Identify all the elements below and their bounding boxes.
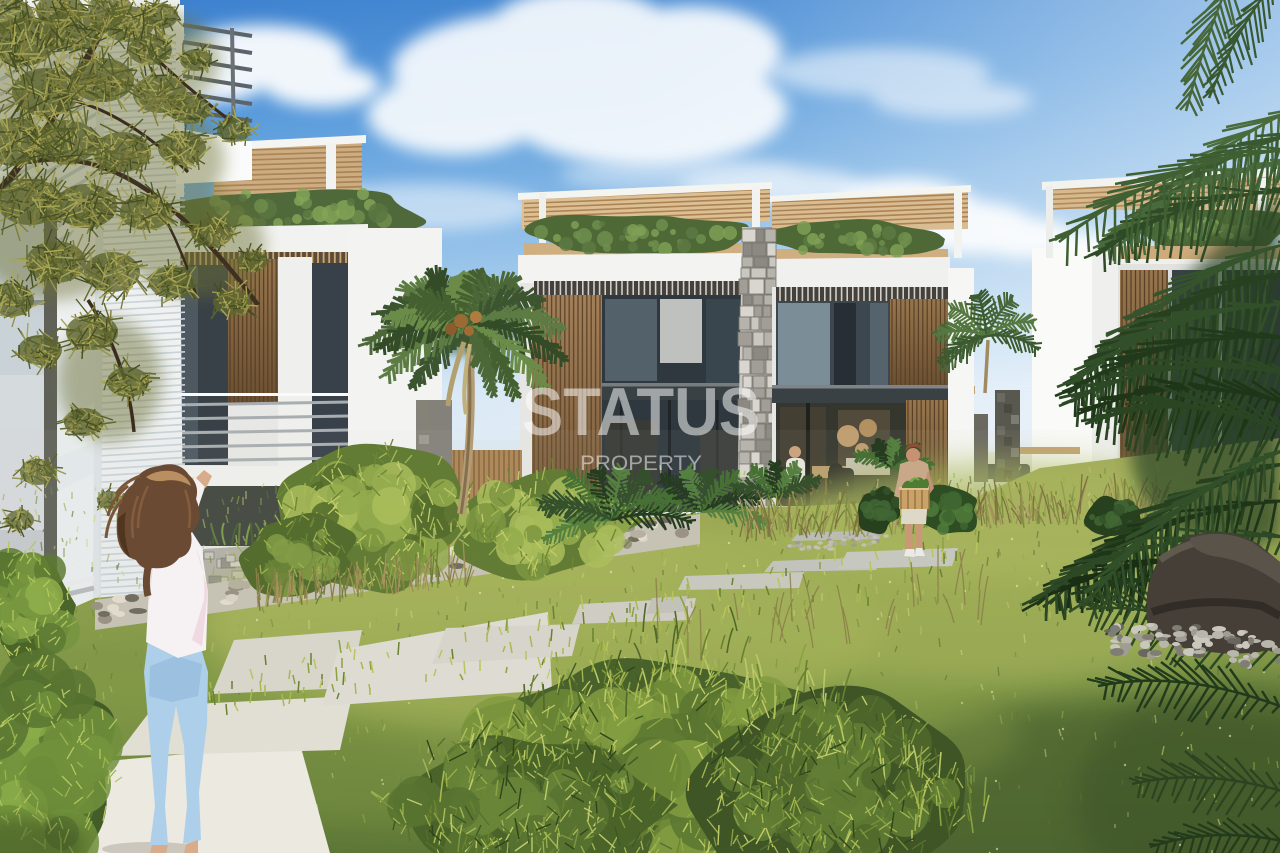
svg-text:STATUS: STATUS <box>522 374 760 450</box>
svg-text:PROPERTY: PROPERTY <box>580 452 702 475</box>
